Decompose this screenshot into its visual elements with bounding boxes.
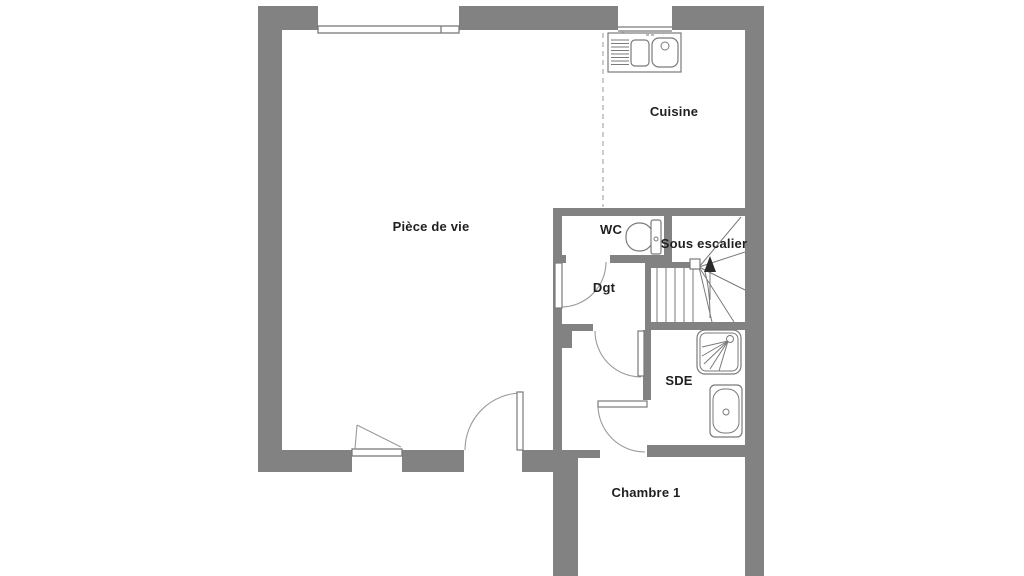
window-bottom-living	[352, 425, 402, 456]
floor-plan: Pièce de vie Cuisine WC Sous escalier Dg…	[0, 0, 1024, 576]
kitchen-sink-icon	[608, 33, 681, 72]
stair-newel	[690, 259, 700, 269]
room-label-sde: SDE	[665, 373, 692, 388]
door-chambre-1	[598, 401, 647, 452]
wall-left	[258, 6, 282, 472]
door-wc-dgt-leaf	[555, 263, 562, 308]
door-main	[465, 392, 523, 450]
bathtub-icon	[710, 385, 742, 437]
wall-wc-top	[553, 208, 745, 216]
room-label-wc: WC	[600, 222, 622, 237]
wall-chambre-left	[553, 472, 578, 576]
wall-living-right	[553, 208, 562, 450]
wall-sde-top	[645, 322, 745, 330]
wall-vestibule-top	[561, 324, 593, 331]
door-main-leaf	[517, 392, 523, 450]
door-vestibule-leaf	[638, 331, 644, 376]
walls	[258, 6, 764, 576]
wall-chambre-top	[647, 445, 745, 457]
wall-bottom-3	[522, 450, 578, 472]
room-label-dgt: Dgt	[593, 280, 615, 295]
toilet-icon	[626, 220, 661, 254]
door-vestibule	[595, 331, 644, 377]
wall-bottom-2	[402, 450, 464, 472]
wall-right	[745, 6, 764, 576]
wall-wc-bottom-b	[610, 255, 672, 263]
window-top-living	[318, 26, 459, 33]
room-label-chambre-1: Chambre 1	[612, 485, 681, 500]
wall-stair-left	[645, 262, 651, 330]
wall-bottom-1	[258, 450, 352, 472]
floor-plan-drawing	[0, 0, 1024, 576]
room-label-cuisine: Cuisine	[650, 104, 698, 119]
wall-wc-bottom-a	[553, 255, 566, 263]
wall-chambre-jamb	[578, 450, 600, 458]
room-label-sous-escalier: Sous escalier	[661, 236, 747, 251]
room-label-piece-de-vie: Pièce de vie	[393, 219, 470, 234]
wall-corner-chunk	[561, 331, 572, 348]
wall-top-2	[459, 6, 618, 30]
shower-icon	[697, 330, 741, 374]
door-chambre-1-leaf	[598, 401, 647, 407]
stair-string-band	[650, 262, 690, 268]
